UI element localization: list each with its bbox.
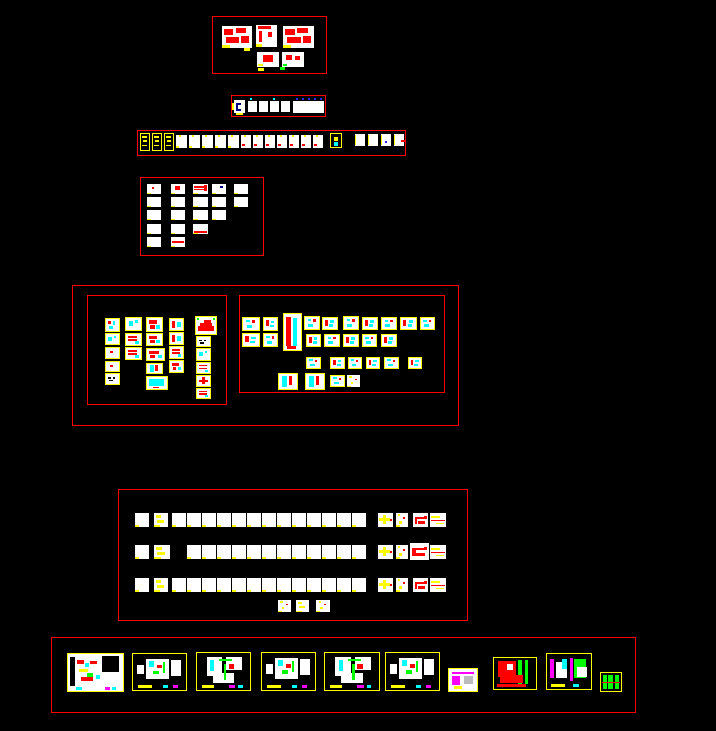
- tile-mark: [267, 685, 281, 688]
- tile-mark: [384, 337, 387, 343]
- drawing-tile[interactable]: [171, 224, 185, 234]
- drawing-tile[interactable]: [343, 316, 359, 330]
- drawing-tile[interactable]: [232, 578, 246, 592]
- tile-mark: [352, 319, 355, 321]
- tile-mark: [388, 341, 392, 343]
- tile-mark: [156, 340, 160, 344]
- tile-mark: [187, 590, 191, 592]
- drawing-tile[interactable]: [413, 578, 428, 592]
- drawing-tile[interactable]: [169, 318, 184, 331]
- tile-mark: [172, 349, 180, 351]
- drawing-tile[interactable]: [234, 197, 248, 207]
- tile-mark: [366, 341, 371, 344]
- drawing-tile[interactable]: [135, 545, 149, 559]
- tile-mark: [391, 685, 405, 688]
- drawing-tile[interactable]: [171, 210, 185, 220]
- drawing-tile[interactable]: [277, 513, 291, 527]
- drawing-tile[interactable]: [302, 98, 304, 100]
- drawing-tile[interactable]: [330, 357, 345, 369]
- drawing-tile[interactable]: [322, 317, 338, 330]
- drawing-tile[interactable]: [385, 652, 440, 691]
- drawing-tile[interactable]: [448, 668, 478, 692]
- drawing-tile[interactable]: [234, 184, 248, 194]
- drawing-tile[interactable]: [234, 100, 245, 113]
- tile-mark: [138, 685, 152, 688]
- drawing-tile[interactable]: [368, 134, 378, 146]
- drawing-tile[interactable]: [228, 135, 239, 148]
- drawing-tile[interactable]: [261, 652, 316, 691]
- drawing-tile[interactable]: [283, 313, 302, 351]
- drawing-tile[interactable]: [314, 98, 316, 100]
- drawing-tile[interactable]: [305, 373, 325, 390]
- drawing-tile[interactable]: [385, 141, 387, 143]
- drawing-tile[interactable]: [171, 184, 185, 194]
- tile-mark: [369, 360, 371, 365]
- tile-mark: [150, 365, 154, 372]
- tile-mark: [149, 320, 157, 324]
- drawing-tile[interactable]: [278, 600, 291, 612]
- drawing-tile[interactable]: [277, 545, 291, 559]
- tile-mark: [387, 359, 390, 361]
- drawing-tile[interactable]: [222, 26, 252, 48]
- drawing-tile[interactable]: [384, 357, 399, 369]
- tile-mark: [153, 387, 159, 389]
- tile-mark: [424, 516, 426, 519]
- drawing-tile[interactable]: [293, 101, 324, 113]
- drawing-tile[interactable]: [347, 375, 360, 387]
- drawing-tile[interactable]: [140, 133, 150, 151]
- tile-mark: [286, 664, 290, 668]
- drawing-tile[interactable]: [247, 545, 261, 559]
- drawing-tile[interactable]: [307, 578, 321, 592]
- drawing-tile[interactable]: [146, 333, 163, 346]
- tile-mark: [390, 584, 392, 586]
- tile-mark: [247, 325, 253, 328]
- drawing-tile[interactable]: [146, 348, 165, 361]
- tile-mark: [316, 611, 320, 612]
- drawing-tile[interactable]: [193, 224, 208, 234]
- drawing-tile[interactable]: [401, 140, 406, 142]
- tile-mark: [204, 185, 206, 191]
- drawing-tile[interactable]: [169, 346, 184, 359]
- drawing-tile[interactable]: [263, 333, 278, 347]
- drawing-tile[interactable]: [396, 513, 408, 527]
- drawing-tile[interactable]: [193, 210, 208, 220]
- tile-mark: [215, 146, 218, 148]
- tile-mark: [90, 661, 97, 665]
- drawing-tile[interactable]: [202, 545, 216, 559]
- drawing-tile[interactable]: [301, 135, 311, 148]
- tile-mark: [292, 685, 297, 688]
- drawing-tile[interactable]: [154, 545, 170, 559]
- drawing-tile[interactable]: [265, 135, 275, 148]
- tile-mark: [166, 145, 170, 147]
- drawing-tile[interactable]: [248, 101, 257, 112]
- drawing-tile[interactable]: [125, 333, 142, 346]
- drawing-tile[interactable]: [330, 133, 342, 148]
- tile-mark: [314, 144, 317, 147]
- drawing-tile[interactable]: [147, 210, 161, 220]
- drawing-tile[interactable]: [146, 376, 168, 390]
- drawing-tile[interactable]: [381, 134, 391, 146]
- tile-mark: [236, 28, 246, 32]
- drawing-tile[interactable]: [306, 334, 321, 347]
- drawing-tile[interactable]: [308, 98, 310, 100]
- tile-mark: [452, 672, 474, 674]
- drawing-tile[interactable]: [396, 545, 408, 559]
- drawing-tile[interactable]: [348, 357, 362, 369]
- tile-mark: [277, 557, 281, 559]
- tile-mark: [172, 335, 176, 341]
- drawing-tile[interactable]: [247, 578, 261, 592]
- drawing-tile[interactable]: [304, 316, 320, 330]
- tile-mark: [424, 581, 426, 584]
- tile-mark: [334, 137, 338, 141]
- tile-mark: [278, 660, 283, 666]
- drawing-tile[interactable]: [146, 317, 163, 332]
- tile-mark: [150, 325, 155, 329]
- tile-mark: [328, 341, 333, 344]
- drawing-tile[interactable]: [337, 545, 351, 559]
- drawing-tile[interactable]: [146, 363, 163, 374]
- drawing-tile[interactable]: [212, 184, 226, 194]
- tile-mark: [137, 665, 144, 674]
- tile-mark: [224, 29, 233, 35]
- tile-mark: [322, 557, 326, 559]
- drawing-tile[interactable]: [283, 26, 314, 48]
- tile-mark: [129, 321, 134, 326]
- tile-mark: [322, 525, 326, 527]
- drawing-tile[interactable]: [262, 513, 276, 527]
- drawing-tile[interactable]: [135, 578, 149, 592]
- tile-mark: [254, 144, 257, 147]
- tile-mark: [277, 525, 281, 527]
- tile-mark: [247, 590, 251, 592]
- tile-mark: [163, 685, 168, 688]
- drawing-tile[interactable]: [307, 513, 321, 527]
- drawing-tile[interactable]: [105, 318, 120, 332]
- drawing-tile[interactable]: [67, 653, 124, 692]
- tile-mark: [424, 324, 429, 327]
- drawing-tile[interactable]: [289, 135, 299, 148]
- drawing-tile[interactable]: [262, 545, 276, 559]
- tile-mark: [150, 340, 155, 343]
- drawing-tile[interactable]: [105, 373, 120, 385]
- drawing-tile[interactable]: [270, 101, 279, 112]
- drawing-tile[interactable]: [600, 672, 622, 692]
- drawing-tile[interactable]: [147, 184, 161, 194]
- drawing-tile[interactable]: [196, 336, 211, 347]
- drawing-tile[interactable]: [322, 513, 336, 527]
- drawing-tile[interactable]: [217, 545, 231, 559]
- drawing-tile[interactable]: [125, 347, 142, 360]
- drawing-tile[interactable]: [292, 545, 306, 559]
- tile-mark: [171, 219, 175, 220]
- tile-mark: [424, 547, 427, 551]
- drawing-tile[interactable]: [196, 362, 211, 374]
- drawing-tile[interactable]: [262, 578, 276, 592]
- drawing-tile[interactable]: [105, 333, 120, 345]
- tile-mark: [232, 590, 236, 592]
- drawing-tile[interactable]: [307, 545, 321, 559]
- tile-mark: [390, 519, 392, 521]
- drawing-tile[interactable]: [322, 578, 336, 592]
- tile-mark: [171, 233, 175, 234]
- tile-mark: [238, 685, 242, 688]
- tile-mark: [199, 340, 202, 341]
- drawing-tile[interactable]: [147, 197, 161, 207]
- tile-mark: [436, 588, 445, 589]
- tile-mark: [228, 146, 231, 148]
- tile-mark: [205, 395, 208, 397]
- tile-mark: [396, 557, 400, 559]
- tile-mark: [330, 685, 342, 688]
- tile-mark: [348, 659, 361, 661]
- drawing-tile[interactable]: [352, 545, 366, 559]
- drawing-tile[interactable]: [324, 652, 380, 691]
- tile-mark: [325, 320, 328, 326]
- drawing-tile[interactable]: [212, 210, 226, 220]
- drawing-tile[interactable]: [215, 135, 226, 148]
- drawing-tile[interactable]: [196, 375, 211, 387]
- drawing-tile[interactable]: [324, 334, 340, 347]
- tile-mark: [368, 135, 369, 145]
- tile-mark: [252, 320, 255, 322]
- drawing-tile[interactable]: [232, 103, 234, 110]
- drawing-tile[interactable]: [410, 543, 429, 560]
- tile-mark: [330, 320, 334, 322]
- tile-mark: [402, 660, 407, 666]
- tile-mark: [431, 585, 444, 587]
- drawing-tile[interactable]: [193, 184, 208, 194]
- tile-mark: [418, 521, 426, 524]
- drawing-tile[interactable]: [244, 48, 250, 51]
- tile-mark: [403, 582, 405, 584]
- drawing-tile[interactable]: [378, 578, 393, 592]
- tile-mark: [414, 364, 418, 366]
- tile-mark: [426, 685, 430, 688]
- tile-mark: [292, 661, 295, 672]
- drawing-tile[interactable]: [292, 513, 306, 527]
- tile-mark: [76, 687, 83, 690]
- drawing-tile[interactable]: [154, 513, 168, 527]
- drawing-tile[interactable]: [263, 317, 278, 331]
- tile-mark: [385, 324, 390, 327]
- drawing-tile[interactable]: [187, 513, 201, 527]
- drawing-tile[interactable]: [277, 578, 291, 592]
- drawing-tile[interactable]: [212, 197, 226, 207]
- drawing-tile[interactable]: [125, 317, 142, 331]
- drawing-tile[interactable]: [430, 513, 446, 527]
- drawing-tile[interactable]: [232, 513, 246, 527]
- drawing-tile[interactable]: [105, 347, 120, 359]
- drawing-tile[interactable]: [202, 135, 213, 148]
- drawing-tile[interactable]: [193, 197, 208, 207]
- drawing-tile[interactable]: [241, 135, 251, 148]
- drawing-tile[interactable]: [196, 652, 251, 691]
- drawing-tile[interactable]: [280, 67, 285, 70]
- tile-mark: [171, 246, 175, 247]
- tile-mark: [398, 514, 400, 516]
- drawing-tile[interactable]: [352, 578, 366, 592]
- drawing-tile[interactable]: [352, 513, 366, 527]
- drawing-tile[interactable]: [202, 578, 216, 592]
- drawing-tile[interactable]: [147, 224, 161, 234]
- drawing-tile[interactable]: [278, 373, 298, 390]
- drawing-tile[interactable]: [105, 361, 120, 372]
- tile-mark: [149, 336, 157, 339]
- drawing-tile[interactable]: [322, 545, 336, 559]
- drawing-tile[interactable]: [247, 513, 261, 527]
- tile-mark: [154, 145, 158, 147]
- tile-mark: [307, 557, 311, 559]
- drawing-tile[interactable]: [381, 334, 397, 347]
- drawing-tile[interactable]: [135, 513, 149, 527]
- tile-mark: [337, 364, 341, 366]
- tile-mark: [114, 336, 117, 338]
- drawing-tile[interactable]: [355, 134, 365, 146]
- tile-mark: [156, 580, 161, 583]
- drawing-tile[interactable]: [172, 513, 186, 527]
- tile-mark: [202, 557, 206, 559]
- drawing-tile[interactable]: [154, 578, 168, 592]
- drawing-tile[interactable]: [169, 360, 184, 373]
- drawing-tile[interactable]: [259, 101, 268, 112]
- tile-mark: [263, 55, 273, 62]
- tile-mark: [193, 219, 198, 220]
- tile-mark: [142, 136, 147, 138]
- tile-mark: [278, 611, 282, 612]
- tile-mark: [390, 320, 393, 322]
- tile-mark: [370, 320, 374, 322]
- drawing-tile[interactable]: [396, 578, 408, 592]
- drawing-tile[interactable]: [250, 98, 252, 100]
- tile-mark: [337, 557, 341, 559]
- drawing-tile[interactable]: [313, 135, 323, 148]
- drawing-tile[interactable]: [381, 317, 397, 330]
- tile-mark: [287, 37, 301, 43]
- drawing-tile[interactable]: [169, 332, 184, 345]
- drawing-tile[interactable]: [217, 513, 231, 527]
- drawing-tile[interactable]: [366, 357, 380, 369]
- drawing-tile[interactable]: [330, 375, 345, 387]
- tile-mark: [266, 336, 269, 338]
- drawing-tile[interactable]: [202, 513, 216, 527]
- drawing-tile[interactable]: [316, 600, 330, 612]
- tile-mark: [338, 360, 342, 362]
- tile-mark: [236, 109, 241, 111]
- drawing-tile[interactable]: [546, 653, 592, 690]
- tile-mark: [393, 360, 396, 362]
- tile-mark: [396, 590, 400, 592]
- drawing-tile[interactable]: [132, 653, 187, 691]
- tile-mark: [328, 337, 332, 339]
- drawing-tile[interactable]: [195, 316, 217, 335]
- tile-mark: [551, 684, 564, 687]
- drawing-tile[interactable]: [273, 98, 275, 100]
- drawing-tile[interactable]: [196, 388, 211, 399]
- drawing-tile[interactable]: [171, 237, 185, 247]
- drawing-tile[interactable]: [378, 513, 393, 527]
- cad-canvas[interactable]: [0, 0, 716, 731]
- drawing-tile[interactable]: [164, 133, 174, 151]
- drawing-tile[interactable]: [187, 545, 201, 559]
- tile-mark: [334, 142, 338, 145]
- drawing-tile[interactable]: [378, 545, 393, 559]
- tile-mark: [102, 656, 119, 672]
- drawing-tile[interactable]: [282, 52, 304, 67]
- drawing-tile[interactable]: [217, 578, 231, 592]
- tile-mark: [299, 606, 306, 608]
- drawing-tile[interactable]: [281, 101, 290, 112]
- drawing-tile[interactable]: [343, 334, 359, 347]
- tile-mark: [172, 363, 179, 366]
- drawing-tile[interactable]: [400, 317, 417, 330]
- drawing-tile[interactable]: [413, 513, 428, 527]
- drawing-tile[interactable]: [242, 333, 260, 347]
- tile-mark: [390, 551, 392, 553]
- drawing-tile[interactable]: [236, 113, 243, 115]
- drawing-tile[interactable]: [430, 545, 446, 559]
- drawing-tile[interactable]: [408, 357, 422, 369]
- drawing-tile[interactable]: [171, 197, 185, 207]
- drawing-tile[interactable]: [306, 357, 321, 369]
- drawing-tile[interactable]: [337, 578, 351, 592]
- tile-mark: [394, 135, 395, 145]
- drawing-tile[interactable]: [258, 68, 264, 71]
- tile-mark: [329, 324, 333, 326]
- drawing-tile[interactable]: [493, 657, 537, 690]
- tile-mark: [267, 341, 272, 344]
- tile-mark: [128, 350, 137, 352]
- drawing-tile[interactable]: [152, 133, 162, 151]
- tile-mark: [310, 364, 315, 367]
- tile-mark: [232, 525, 236, 527]
- drawing-tile[interactable]: [292, 578, 306, 592]
- drawing-tile[interactable]: [257, 52, 279, 67]
- tile-mark: [202, 525, 206, 527]
- drawing-tile[interactable]: [242, 317, 260, 331]
- drawing-tile[interactable]: [430, 578, 446, 592]
- drawing-tile[interactable]: [232, 545, 246, 559]
- drawing-tile[interactable]: [362, 334, 377, 347]
- tile-mark: [352, 664, 355, 680]
- tile-mark: [295, 56, 300, 60]
- drawing-tile[interactable]: [189, 135, 200, 148]
- drawing-tile[interactable]: [172, 578, 186, 592]
- drawing-tile[interactable]: [256, 25, 277, 47]
- drawing-tile[interactable]: [187, 578, 201, 592]
- tile-mark: [411, 360, 413, 365]
- drawing-tile[interactable]: [296, 98, 298, 100]
- drawing-tile[interactable]: [196, 348, 211, 361]
- drawing-tile[interactable]: [147, 237, 161, 247]
- tile-mark: [142, 145, 146, 147]
- tile-mark: [357, 685, 363, 688]
- drawing-tile[interactable]: [176, 135, 187, 148]
- tile-mark: [283, 64, 287, 66]
- drawing-tile[interactable]: [277, 135, 287, 148]
- tile-mark: [135, 320, 138, 322]
- drawing-tile[interactable]: [362, 317, 378, 330]
- drawing-tile[interactable]: [320, 98, 322, 100]
- drawing-tile[interactable]: [253, 135, 263, 148]
- drawing-tile[interactable]: [337, 513, 351, 527]
- drawing-tile[interactable]: [420, 317, 435, 330]
- drawing-tile[interactable]: [296, 600, 309, 612]
- tile-mark: [415, 360, 419, 362]
- tile-mark: [218, 135, 220, 137]
